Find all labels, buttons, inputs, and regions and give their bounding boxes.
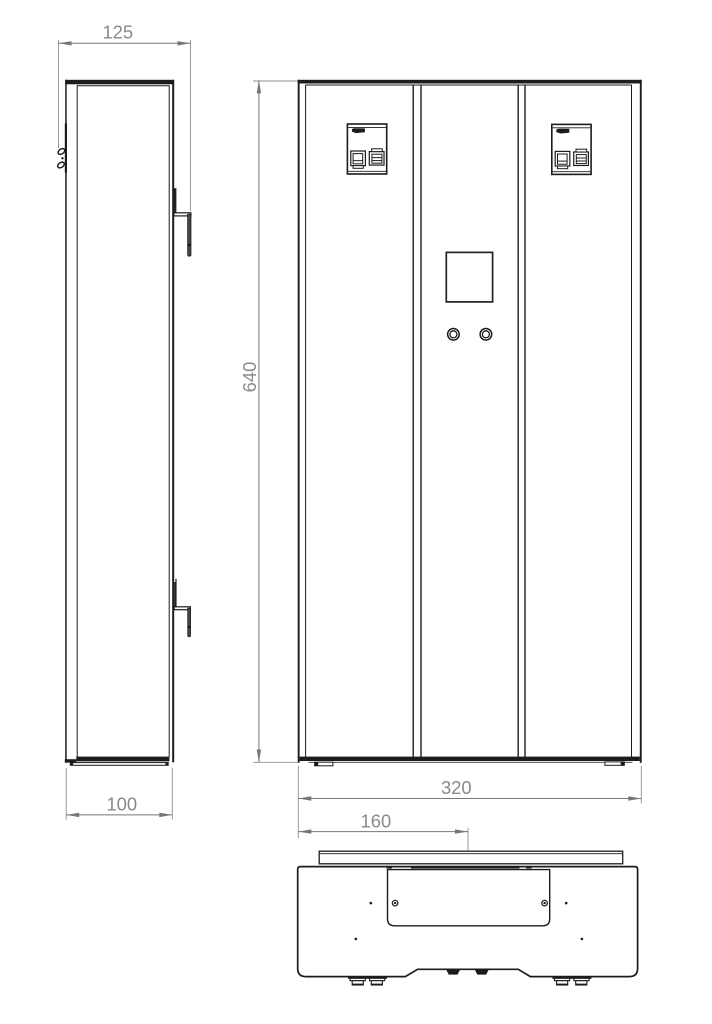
- svg-text:320: 320: [441, 777, 472, 798]
- svg-text:640: 640: [239, 362, 260, 393]
- svg-text:100: 100: [106, 793, 137, 814]
- svg-text:125: 125: [102, 22, 133, 43]
- svg-text:160: 160: [361, 810, 392, 831]
